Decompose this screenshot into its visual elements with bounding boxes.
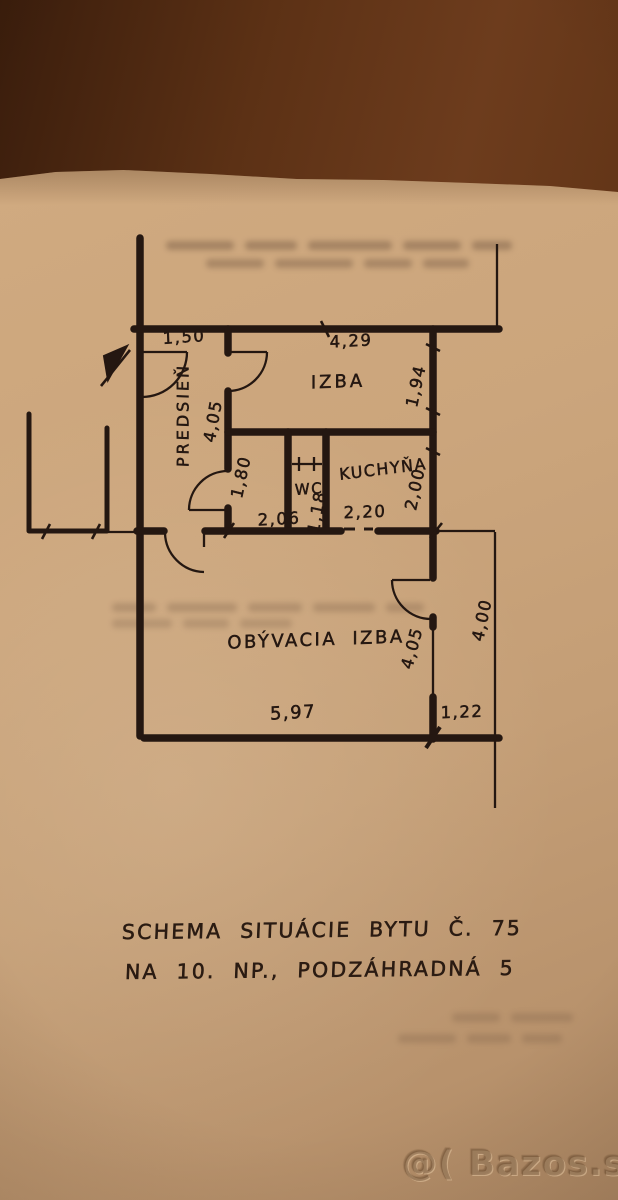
entrance-mark-icon — [101, 346, 130, 386]
room-label-izba: IZBA — [311, 371, 365, 394]
balcony-outline — [29, 414, 107, 531]
photo-of-floor-plan: PREDSIEŇ IZBA WC KUCHYŇA OBÝVACIA IZBA 1… — [0, 0, 618, 1200]
door-arc-izba — [228, 352, 267, 391]
door-arc-hall — [189, 471, 228, 510]
door-arc-kitchen — [392, 580, 431, 619]
room-label-predsien: PREDSIEŇ — [174, 363, 193, 468]
dimension-label-5-97: 5,97 — [270, 701, 316, 724]
dimension-label-2-20: 2,20 — [344, 502, 387, 523]
dimension-label-4-29: 4,29 — [329, 330, 372, 351]
floor-plan-drawing: PREDSIEŇ IZBA WC KUCHYŇA OBÝVACIA IZBA 1… — [0, 0, 618, 1200]
dimension-label-1-50: 1,50 — [162, 326, 205, 348]
caption-line-1: SCHEMA SITUÁCIE BYTU Č. 75 — [121, 916, 522, 944]
floor-plan-svg — [0, 0, 618, 1200]
dimension-label-2-06: 2,06 — [257, 508, 300, 529]
dimension-line-right — [437, 531, 495, 808]
caption-line-2: NA 10. NP., PODZÁHRADNÁ 5 — [125, 956, 516, 984]
bazos-watermark: @( Bazos.sk — [402, 1144, 618, 1184]
door-mark-wc — [292, 457, 322, 471]
door-arc-living — [165, 533, 204, 572]
dimension-label-1-22: 1,22 — [441, 702, 484, 723]
